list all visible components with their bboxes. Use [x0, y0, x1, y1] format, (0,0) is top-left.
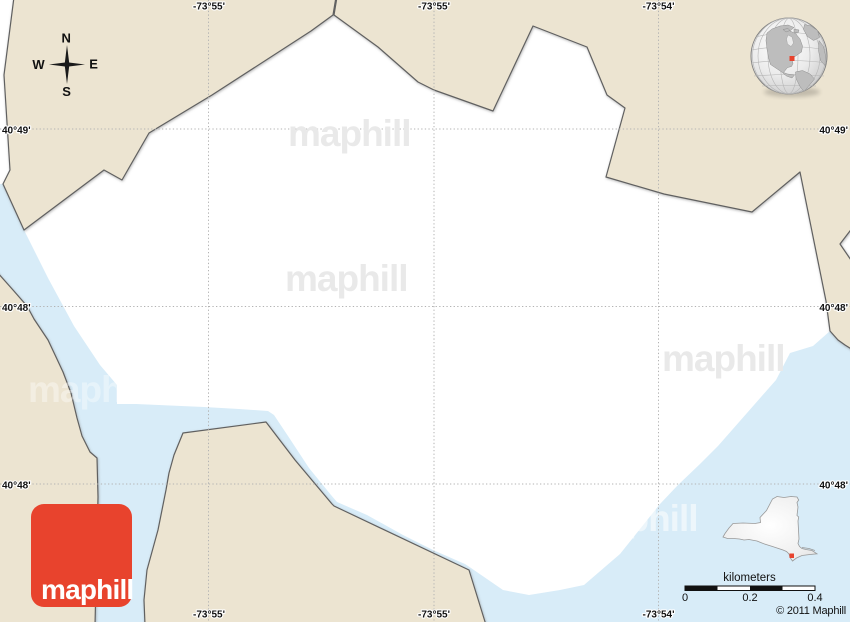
svg-text:maphill: maphill: [28, 369, 151, 410]
svg-text:-73°55': -73°55': [193, 2, 225, 13]
svg-text:40°48': 40°48': [819, 303, 848, 314]
svg-text:0: 0: [682, 592, 688, 604]
svg-text:W: W: [32, 57, 45, 72]
svg-text:maphill: maphill: [285, 258, 408, 299]
svg-text:N: N: [62, 31, 71, 46]
svg-text:0.2: 0.2: [742, 592, 757, 604]
svg-text:maphill: maphill: [662, 338, 785, 379]
svg-text:-73°54': -73°54': [643, 610, 675, 621]
svg-text:40°49': 40°49': [819, 126, 848, 137]
svg-text:40°49': 40°49': [2, 126, 31, 137]
svg-text:-73°55': -73°55': [418, 2, 450, 13]
svg-text:40°48': 40°48': [2, 303, 31, 314]
svg-text:maphill: maphill: [575, 498, 698, 539]
svg-text:0.4: 0.4: [807, 592, 822, 604]
svg-text:-73°55': -73°55': [193, 610, 225, 621]
svg-text:kilometers: kilometers: [723, 572, 776, 584]
svg-text:S: S: [62, 84, 71, 99]
svg-text:© 2011 Maphill: © 2011 Maphill: [776, 605, 846, 617]
svg-text:40°48': 40°48': [819, 481, 848, 492]
svg-text:maphill: maphill: [41, 574, 133, 605]
svg-text:maphill: maphill: [288, 113, 411, 154]
svg-text:-73°54': -73°54': [643, 2, 675, 13]
svg-text:40°48': 40°48': [2, 481, 31, 492]
svg-text:-73°55': -73°55': [418, 610, 450, 621]
svg-text:E: E: [89, 57, 98, 72]
